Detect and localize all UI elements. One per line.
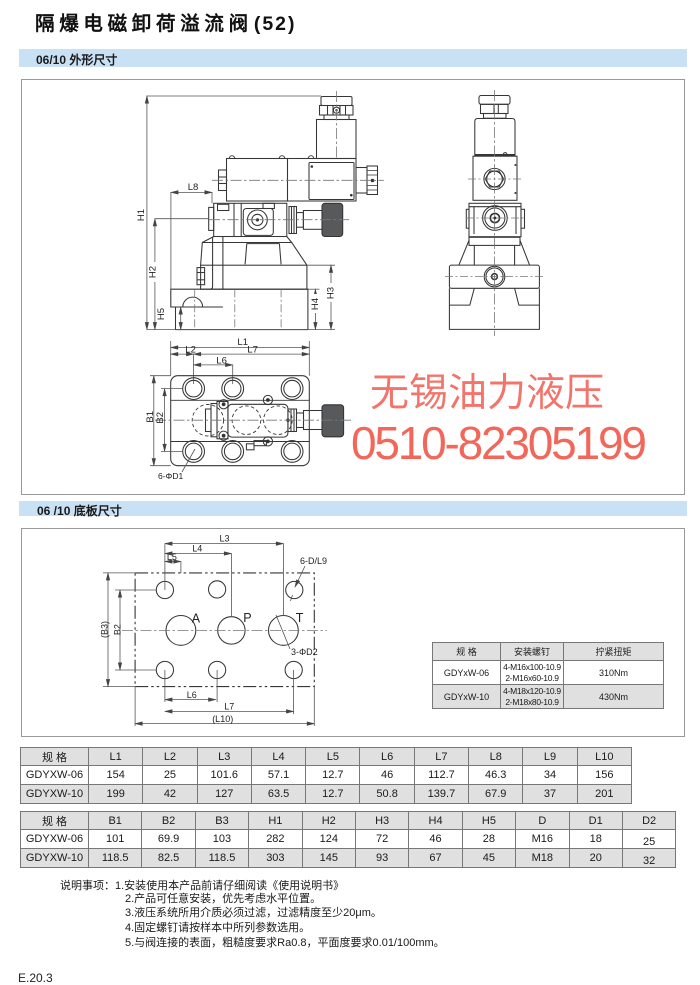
- svg-text:L5: L5: [167, 552, 177, 562]
- svg-text:L7: L7: [247, 344, 258, 355]
- svg-text:B2: B2: [155, 412, 166, 424]
- svg-text:A: A: [192, 612, 201, 626]
- svg-text:6-D/L9: 6-D/L9: [300, 556, 327, 566]
- svg-text:L3: L3: [219, 534, 229, 544]
- svg-text:L8: L8: [188, 182, 199, 193]
- svg-text:3-ΦD2: 3-ΦD2: [291, 647, 318, 657]
- svg-text:H2: H2: [148, 266, 159, 278]
- svg-text:(L10): (L10): [212, 714, 233, 724]
- svg-text:H1: H1: [136, 209, 147, 221]
- svg-text:L2: L2: [185, 344, 196, 355]
- svg-text:L7: L7: [224, 702, 234, 712]
- svg-text:(B3): (B3): [100, 621, 110, 638]
- svg-text:L6: L6: [216, 355, 227, 366]
- svg-text:L6: L6: [187, 690, 197, 700]
- svg-text:H5: H5: [156, 308, 167, 320]
- svg-text:B2: B2: [113, 624, 123, 635]
- svg-text:T: T: [296, 611, 304, 625]
- svg-text:H3: H3: [326, 287, 337, 299]
- svg-text:6-ΦD1: 6-ΦD1: [158, 471, 183, 481]
- svg-text:L4: L4: [192, 544, 202, 554]
- svg-text:H4: H4: [310, 298, 321, 310]
- svg-text:P: P: [243, 611, 251, 625]
